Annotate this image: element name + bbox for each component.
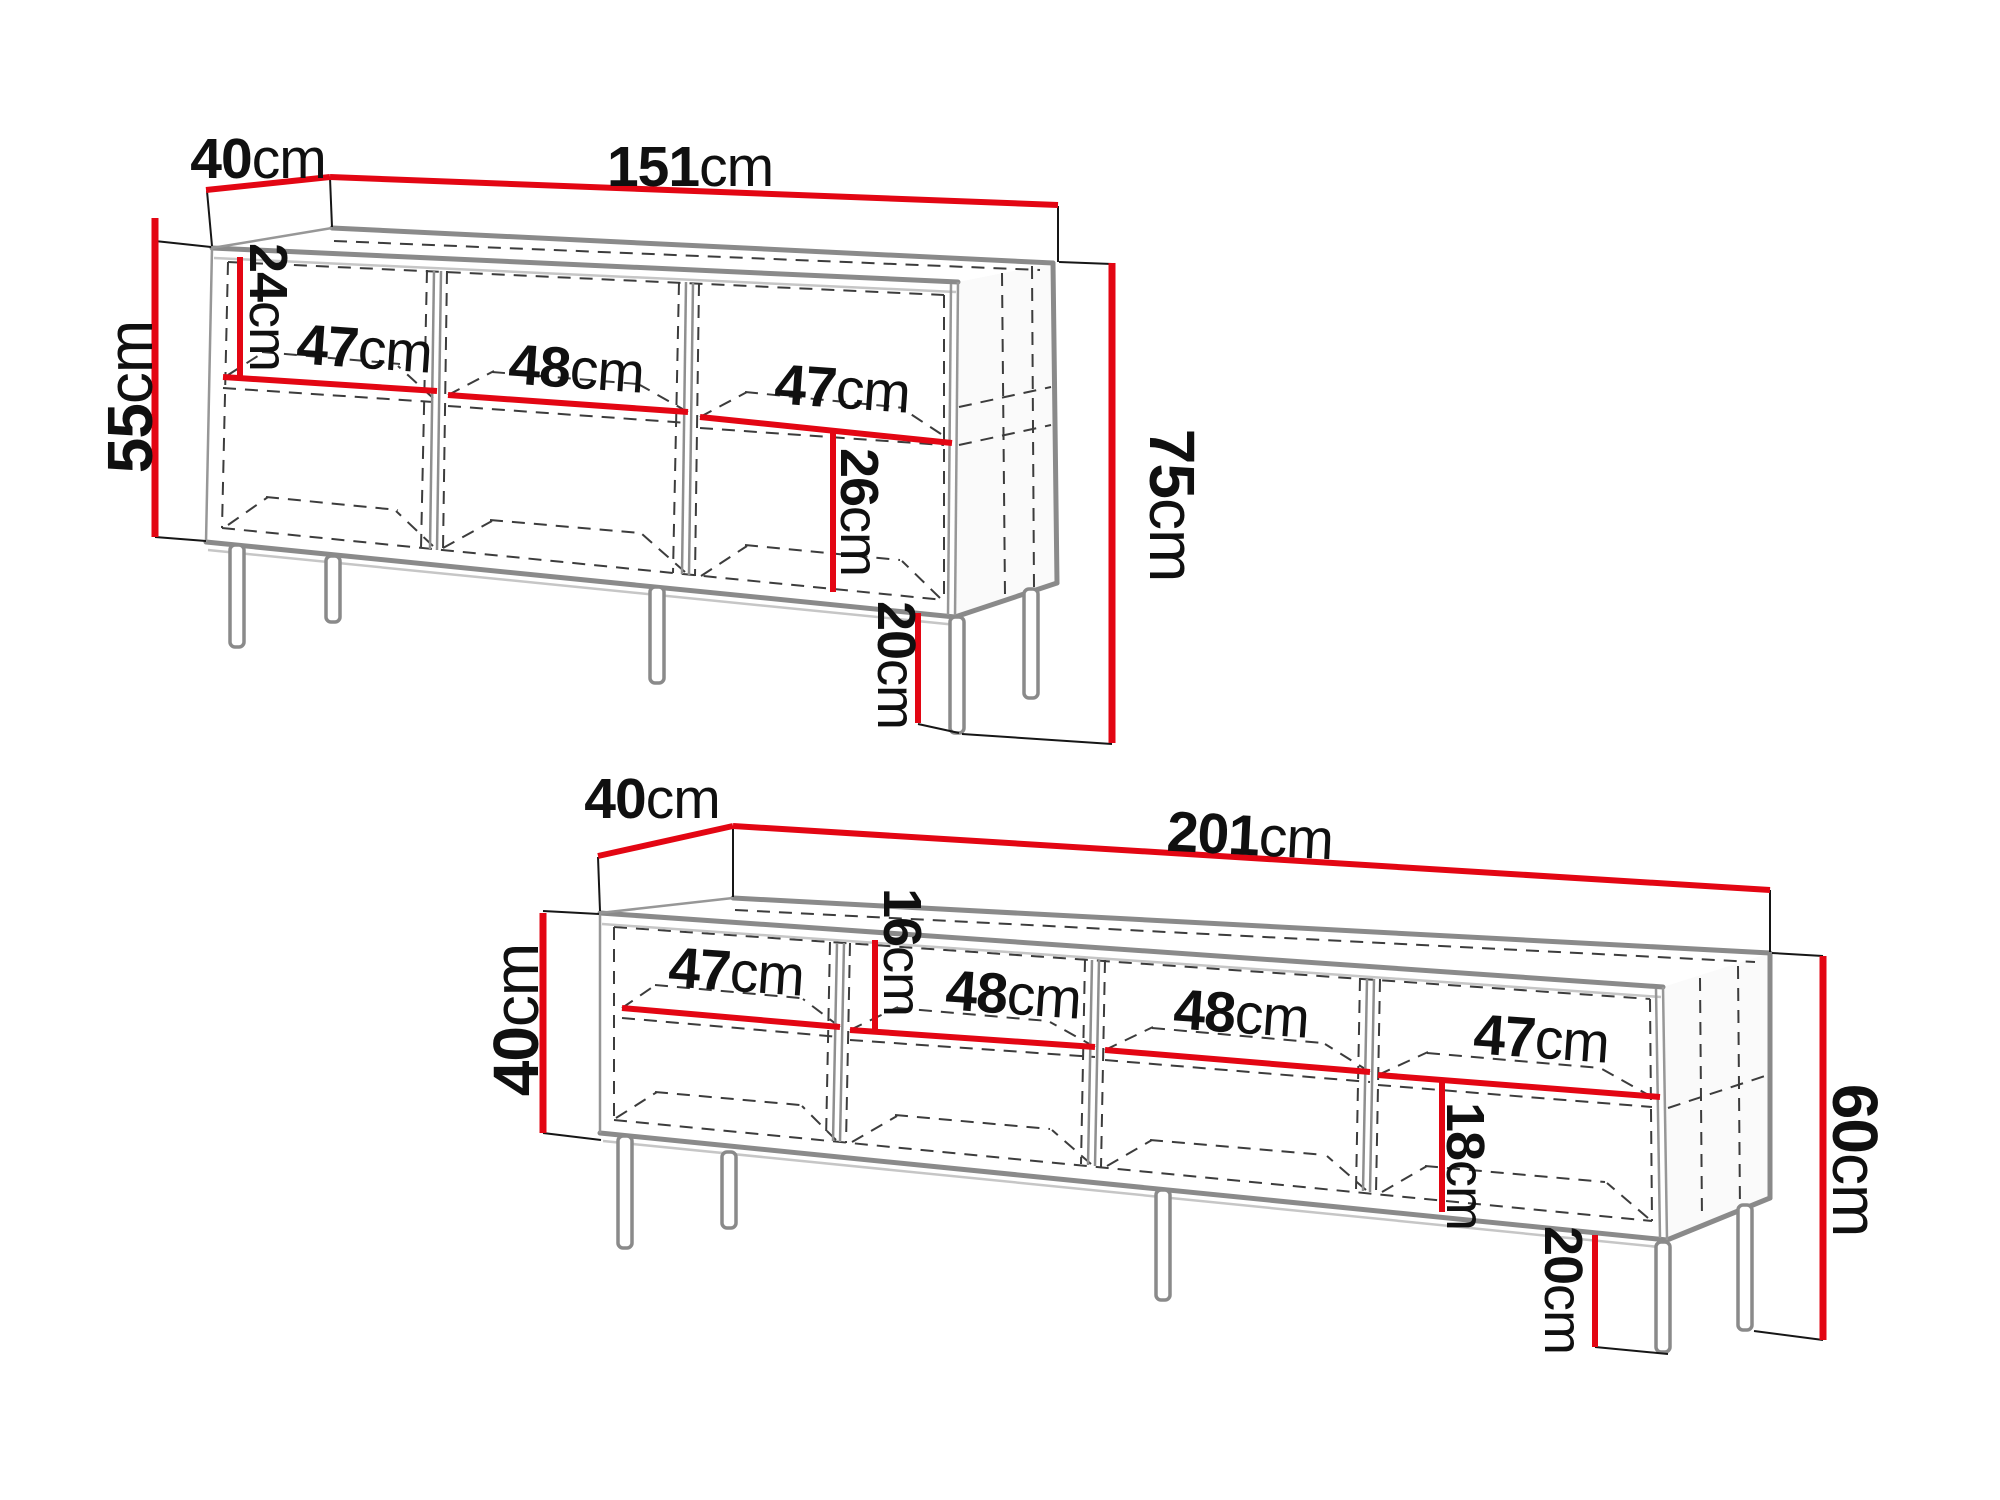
tv-stand-total-height-label: 60cm: [1819, 1084, 1891, 1237]
sideboard-leg-back-right: [1024, 589, 1038, 698]
sideboard-leg-front-middle: [650, 587, 664, 683]
sideboard-compartment-1-label: 47cm: [295, 312, 435, 385]
sideboard-compartment-2-label: 48cm: [507, 332, 647, 405]
tv-stand-diagram: 40cm 201cm 40cm 60cm 16cm 18cm 20cm 47cm…: [480, 767, 1891, 1354]
tv-stand-leg-back-right: [1738, 1205, 1752, 1330]
tv-stand-compartment-1-label: 47cm: [667, 935, 807, 1008]
tv-stand-compartment-2-label: 48cm: [944, 958, 1084, 1031]
tv-stand-depth-label: 40cm: [584, 767, 719, 831]
sideboard-leg-back-left: [326, 556, 340, 622]
tv-stand-leg-back-left: [722, 1152, 736, 1228]
sideboard-compartment-3-label: 47cm: [773, 352, 913, 425]
sideboard-total-height-label: 75cm: [1136, 429, 1208, 582]
tv-stand-body-height-label: 40cm: [480, 944, 552, 1097]
furniture-dimension-diagram: 40cm 151cm 55cm 75cm 24cm 26cm 20cm 47cm…: [0, 0, 2000, 1500]
tv-stand-leg-front-right: [1656, 1242, 1670, 1352]
tv-stand-leg-height-label: 20cm: [1533, 1226, 1593, 1354]
sideboard-bottom-compartment-label: 26cm: [829, 448, 889, 576]
tv-stand-top-compartment-label: 16cm: [872, 888, 932, 1016]
sideboard-leg-front-right: [950, 617, 964, 733]
sideboard-diagram: 40cm 151cm 55cm 75cm 24cm 26cm 20cm 47cm…: [94, 127, 1208, 744]
tv-stand-leg-front-left: [618, 1136, 632, 1248]
sideboard-side-face: [955, 263, 1057, 617]
sideboard-body-height-label: 55cm: [94, 321, 166, 474]
sideboard-leg-front-left: [230, 545, 244, 647]
furniture-dimension-sheet: 40cm 151cm 55cm 75cm 24cm 26cm 20cm 47cm…: [0, 0, 2000, 1500]
tv-stand-compartment-3-label: 48cm: [1172, 977, 1312, 1050]
tv-stand-leg-front-middle: [1156, 1190, 1170, 1300]
sideboard-top-compartment-label: 24cm: [238, 243, 298, 371]
sideboard-leg-height-label: 20cm: [866, 601, 926, 729]
sideboard-depth-label: 40cm: [190, 127, 325, 191]
sideboard-width-label: 151cm: [607, 135, 773, 199]
tv-stand-width-label: 201cm: [1165, 800, 1334, 873]
tv-stand-bottom-compartment-label: 18cm: [1435, 1102, 1495, 1230]
tv-stand-side-face: [1663, 953, 1770, 1240]
tv-stand-compartment-4-label: 47cm: [1472, 1002, 1612, 1075]
